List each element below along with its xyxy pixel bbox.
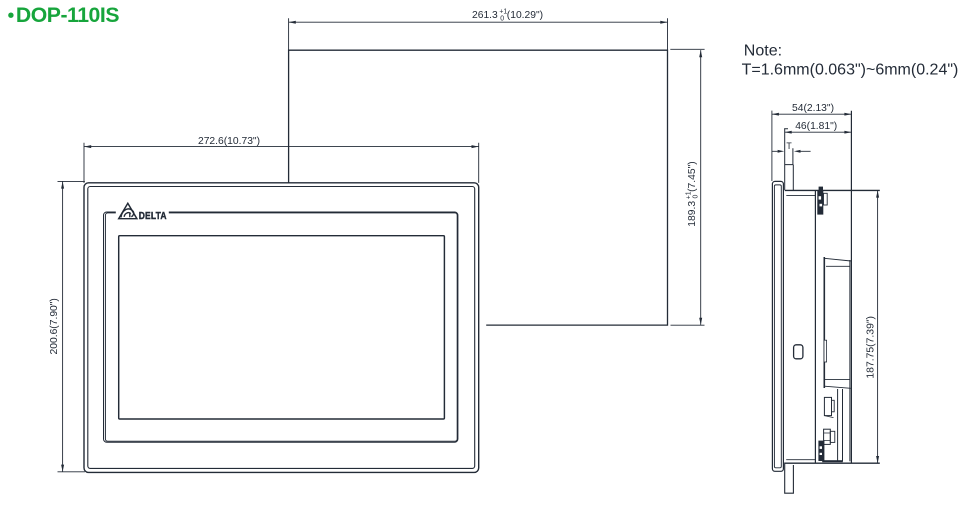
svg-text:T: T [786, 141, 792, 151]
svg-text:46(1.81"): 46(1.81") [795, 121, 837, 132]
svg-text:Note:: Note: [744, 43, 782, 60]
svg-text:54(2.13"): 54(2.13") [792, 103, 834, 114]
svg-text:187.75(7.39"): 187.75(7.39") [865, 316, 876, 379]
svg-text:DOP-110IS: DOP-110IS [16, 4, 119, 27]
svg-text:189.3: 189.3 [687, 201, 698, 227]
svg-text:DELTA: DELTA [139, 210, 167, 222]
svg-text:0: 0 [693, 195, 700, 199]
svg-text:(10.29"): (10.29") [507, 10, 543, 21]
svg-text:200.6(7.90"): 200.6(7.90") [49, 298, 60, 354]
svg-text:T=1.6mm(0.063")~6mm(0.24"): T=1.6mm(0.063")~6mm(0.24") [742, 62, 959, 79]
svg-text:(7.45"): (7.45") [687, 161, 698, 192]
svg-text:272.6(10.73"): 272.6(10.73") [198, 136, 260, 147]
svg-text:261.3: 261.3 [472, 10, 498, 21]
svg-text:0: 0 [500, 16, 504, 23]
